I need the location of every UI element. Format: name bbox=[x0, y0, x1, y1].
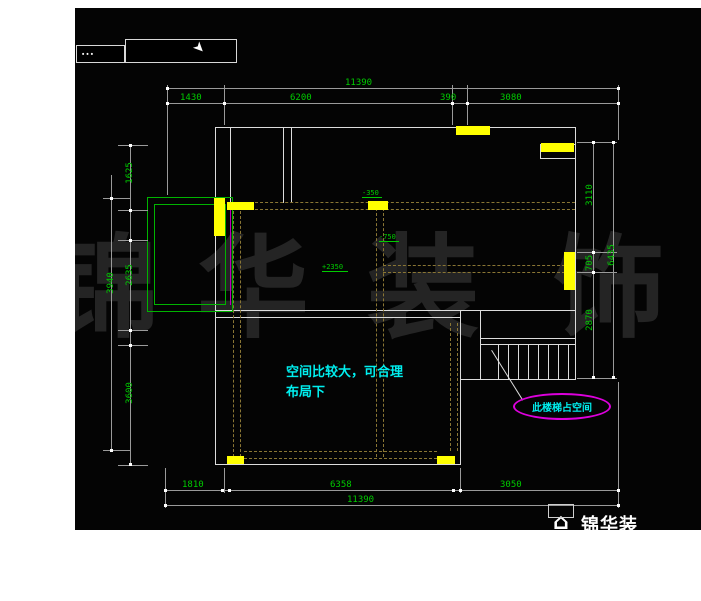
column-highlight bbox=[437, 456, 455, 464]
dim-label: 3940 bbox=[106, 265, 116, 301]
stair-step bbox=[528, 344, 529, 379]
extension-line bbox=[103, 198, 131, 199]
dim-tick bbox=[452, 489, 455, 492]
dim-label: 1810 bbox=[182, 480, 204, 490]
elevation-label: +2350 bbox=[322, 263, 343, 271]
toolbar-cell[interactable] bbox=[125, 39, 237, 63]
extension-line bbox=[118, 210, 148, 211]
space-note-line1: 空间比较大，可合理 bbox=[286, 361, 403, 380]
dim-tick bbox=[612, 376, 615, 379]
dim-label: 3600 bbox=[125, 375, 135, 411]
dim-tick bbox=[129, 144, 132, 147]
window-line bbox=[230, 205, 231, 305]
elevation-label: -350 bbox=[362, 189, 379, 197]
stair-callout-text: 此楼梯占空间 bbox=[532, 399, 592, 414]
dim-label: 3050 bbox=[500, 480, 522, 490]
dim-label: 6358 bbox=[330, 480, 352, 490]
layout-dash-line bbox=[383, 272, 565, 273]
layout-dash-line bbox=[450, 323, 451, 451]
dim-tick bbox=[466, 102, 469, 105]
elevation-underline bbox=[362, 197, 382, 198]
dim-tick bbox=[166, 102, 169, 105]
frame-corner bbox=[548, 504, 574, 518]
dim-tick bbox=[221, 489, 224, 492]
dim-tick bbox=[612, 141, 615, 144]
toolbar-cell-marks: ∙∙∙ bbox=[81, 50, 94, 58]
stair-step bbox=[558, 344, 559, 379]
dim-tick bbox=[617, 504, 620, 507]
elevation-label: -750 bbox=[379, 233, 396, 241]
wall-line bbox=[230, 127, 231, 204]
wall-line bbox=[215, 464, 461, 465]
column-highlight bbox=[227, 202, 254, 210]
column-highlight bbox=[564, 252, 575, 290]
dim-tick bbox=[129, 329, 132, 332]
layout-dash-line bbox=[244, 458, 437, 459]
layout-dash-line bbox=[240, 211, 241, 457]
column-highlight bbox=[456, 126, 490, 135]
dim-label: 3110 bbox=[585, 177, 595, 213]
wall-line bbox=[575, 127, 576, 380]
extension-line bbox=[118, 145, 148, 146]
stair-step bbox=[508, 344, 509, 379]
column-highlight bbox=[368, 201, 388, 210]
column-highlight bbox=[214, 198, 225, 236]
stair-step bbox=[538, 344, 539, 379]
dim-label: 3080 bbox=[500, 93, 522, 103]
stair-line bbox=[480, 338, 576, 339]
dim-tick bbox=[459, 489, 462, 492]
wall-line bbox=[460, 379, 576, 380]
dim-tick bbox=[129, 239, 132, 242]
elevation-underline bbox=[379, 241, 399, 242]
column-highlight bbox=[227, 456, 244, 464]
extension-line bbox=[224, 468, 225, 493]
extension-line bbox=[577, 378, 617, 379]
layout-dash-line bbox=[233, 211, 234, 457]
dimension-line bbox=[167, 103, 619, 104]
wall-line bbox=[215, 317, 461, 318]
extension-line bbox=[118, 345, 148, 346]
brand-logo-text: 锦华装 bbox=[581, 511, 638, 530]
stair-step bbox=[548, 344, 549, 379]
layout-dash-line bbox=[376, 203, 377, 457]
stair-step bbox=[518, 344, 519, 379]
stair-step bbox=[568, 344, 569, 379]
wall-line bbox=[215, 127, 576, 128]
dim-tick bbox=[110, 197, 113, 200]
dim-label: 6200 bbox=[290, 93, 312, 103]
dim-label-bottom-total: 11390 bbox=[347, 495, 374, 505]
stair-callout-ellipse: 此楼梯占空间 bbox=[513, 393, 611, 420]
wall-line bbox=[215, 310, 576, 311]
dim-tick bbox=[592, 376, 595, 379]
dim-tick bbox=[166, 87, 169, 90]
dim-tick bbox=[129, 344, 132, 347]
extension-line bbox=[467, 85, 468, 125]
dim-tick bbox=[617, 102, 620, 105]
dim-tick bbox=[110, 449, 113, 452]
cad-page: 锦 华 装 饰 ⌂ 锦华装 ∙∙∙ ➤ bbox=[0, 0, 701, 601]
dim-tick bbox=[129, 209, 132, 212]
space-note-line2: 布局下 bbox=[286, 381, 325, 400]
toolbar-cell[interactable]: ∙∙∙ bbox=[76, 45, 125, 63]
layout-dash-line bbox=[244, 451, 437, 452]
dim-label: 705 bbox=[585, 245, 595, 281]
extension-line bbox=[118, 240, 148, 241]
extension-line bbox=[224, 85, 225, 125]
dim-tick bbox=[617, 489, 620, 492]
dim-label: 1625 bbox=[125, 155, 135, 191]
dimension-line bbox=[130, 145, 131, 465]
layout-dash-line bbox=[457, 323, 458, 451]
dimension-line bbox=[111, 175, 112, 451]
dim-tick bbox=[617, 87, 620, 90]
extension-line bbox=[452, 85, 453, 125]
layout-dash-line bbox=[255, 209, 575, 210]
dim-tick bbox=[164, 489, 167, 492]
dim-tick bbox=[228, 489, 231, 492]
dim-tick bbox=[223, 102, 226, 105]
layout-dash-line bbox=[383, 265, 565, 266]
layout-dash-line bbox=[255, 202, 575, 203]
dim-label: 1430 bbox=[180, 93, 202, 103]
wall-line bbox=[460, 310, 461, 465]
dim-label-top-total: 11390 bbox=[345, 78, 372, 88]
extension-line bbox=[618, 85, 619, 140]
dim-label: 6435 bbox=[607, 237, 617, 273]
dimension-line bbox=[167, 88, 619, 89]
column-highlight bbox=[541, 143, 574, 152]
extension-line bbox=[577, 142, 617, 143]
extension-line bbox=[103, 450, 131, 451]
dim-tick bbox=[129, 463, 132, 466]
dim-tick bbox=[592, 141, 595, 144]
door-line bbox=[283, 128, 284, 203]
dim-label: 2635 bbox=[125, 257, 135, 293]
dim-tick bbox=[164, 504, 167, 507]
extension-line bbox=[165, 468, 166, 508]
door-line bbox=[291, 128, 292, 203]
extension-line bbox=[118, 465, 148, 466]
dim-label: 390 bbox=[440, 93, 456, 103]
extension-line bbox=[118, 330, 148, 331]
elevation-underline bbox=[322, 271, 348, 272]
dim-label: 2870 bbox=[585, 302, 595, 338]
dimension-line bbox=[165, 490, 619, 491]
